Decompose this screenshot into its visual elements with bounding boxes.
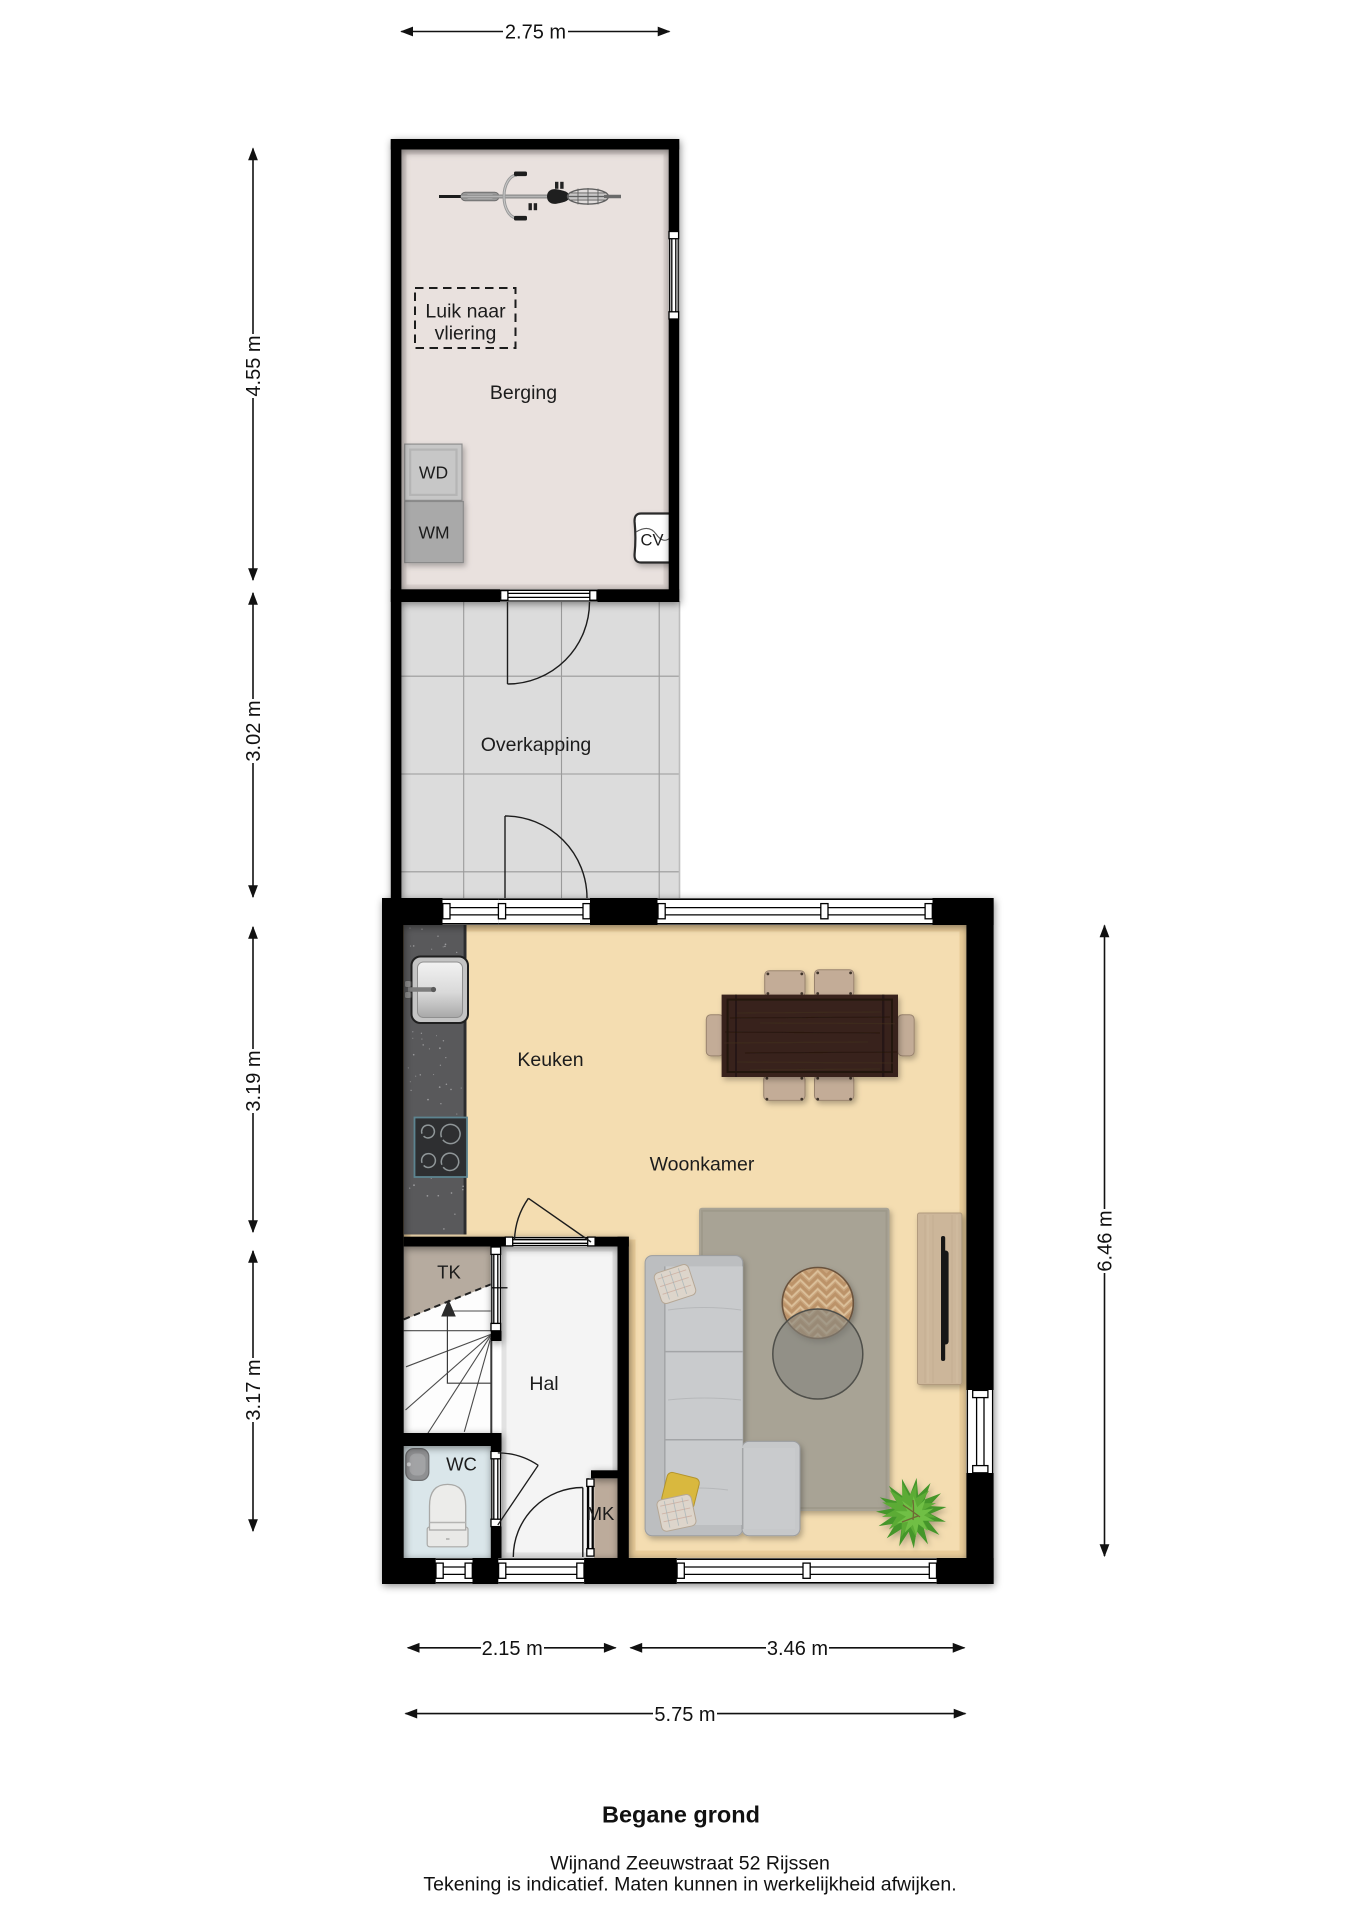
svg-text:TK: TK [437,1262,461,1283]
svg-text:WD: WD [419,463,448,483]
svg-text:Luik naar: Luik naar [425,301,506,323]
svg-text:Tekening is indicatief. Maten: Tekening is indicatief. Maten kunnen in … [423,1874,956,1896]
svg-text:Keuken: Keuken [517,1049,583,1071]
svg-text:5.75 m: 5.75 m [654,1704,715,1726]
svg-text:2.75 m: 2.75 m [505,22,566,44]
svg-text:WC: WC [446,1454,477,1475]
svg-text:Berging: Berging [490,382,557,404]
svg-text:3.46 m: 3.46 m [767,1638,828,1660]
svg-text:3.02 m: 3.02 m [243,700,265,761]
svg-text:Overkapping: Overkapping [481,734,592,756]
svg-text:6.46 m: 6.46 m [1095,1210,1117,1271]
svg-text:4.55 m: 4.55 m [243,335,265,396]
svg-text:Wijnand Zeeuwstraat 52 Rijssen: Wijnand Zeeuwstraat 52 Rijssen [550,1853,830,1875]
svg-text:3.19 m: 3.19 m [243,1050,265,1111]
svg-text:vliering: vliering [435,323,497,345]
svg-text:MK: MK [587,1503,615,1524]
svg-text:Woonkamer: Woonkamer [650,1154,755,1176]
svg-text:CV: CV [641,532,664,550]
svg-text:Begane grond: Begane grond [602,1802,760,1828]
svg-text:3.17 m: 3.17 m [243,1359,265,1420]
svg-text:WM: WM [418,523,449,543]
svg-text:2.15 m: 2.15 m [482,1638,543,1660]
svg-text:Hal: Hal [529,1373,558,1395]
